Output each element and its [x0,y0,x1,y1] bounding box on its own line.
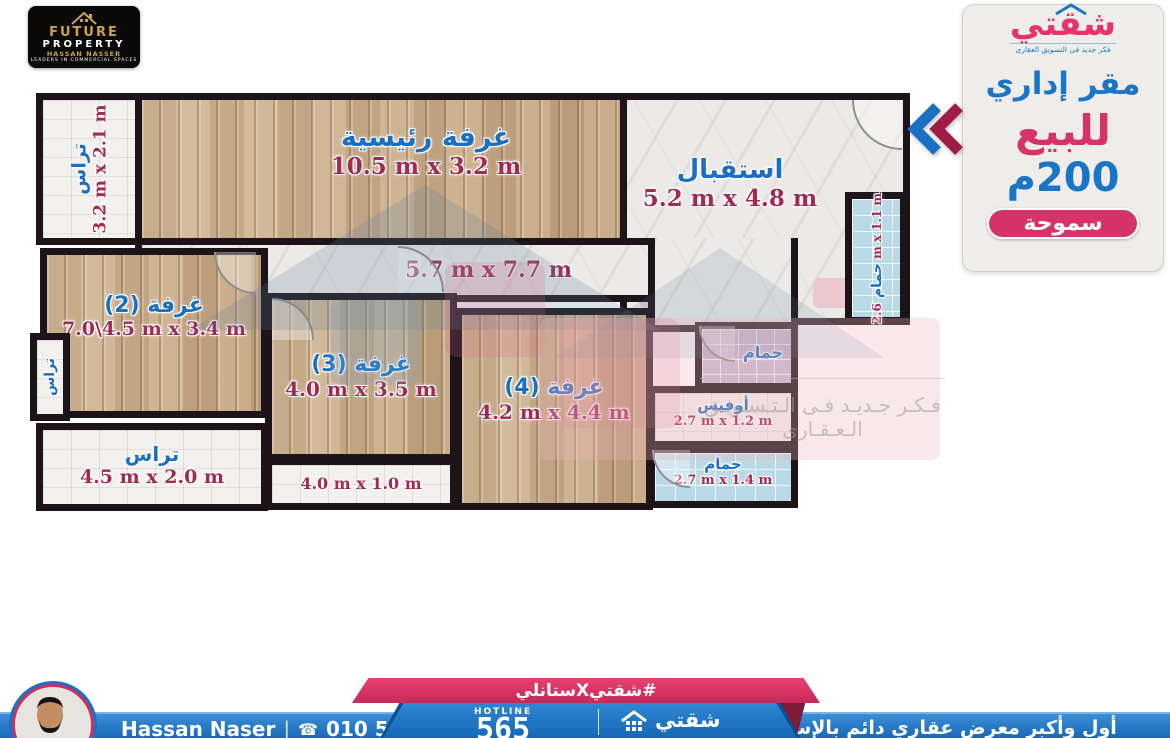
future-property-logo: FUTURE PROPERTY HASSAN NASSER LEADERS IN… [28,6,140,68]
room-label: تراس [68,143,90,195]
phone-icon: ☎ [298,720,318,738]
shaqati-logo-tagline: فكر جديد فى التسويق العقارى [1010,43,1116,54]
room-dims: 4.0 m x 3.5 m [272,377,450,401]
agent-name: Hassan Naser [121,717,275,738]
room-label: غرفة (2) [47,293,261,318]
brand-line1: FUTURE [49,26,119,39]
room-terrace-bottom: تراس 4.5 m x 2.0 m [36,423,268,511]
footer-logo-text: شقتي [655,710,721,731]
room-label: غرفة (4) [462,375,646,400]
room-terrace-left: تراس [30,333,70,421]
brand-tagline: LEADERS IN COMMERCIAL SPACES [31,59,138,64]
room-label: غرفة (3) [272,352,450,377]
room-dims: 2.7 m x 1.2 m [655,414,791,429]
brand-agent: HASSAN NASSER [47,51,121,58]
room-dims: 3.2 m x 2.1 m [90,105,110,234]
room-dims: 10.5 m x 3.2 m [232,153,620,180]
flyer-canvas: FUTURE PROPERTY HASSAN NASSER LEADERS IN… [0,0,1170,738]
hotline-number: 565 [441,717,565,738]
hashtag: #شقتيXستانلي [516,681,657,701]
room-reception-lower [648,238,798,332]
property-type: مقر إداري [986,66,1141,102]
room-label: أوفيس [655,396,791,414]
divider: | [283,717,290,738]
room-label: حمام [743,343,783,362]
agent-portrait [15,687,85,738]
room-label: غرفة رئيسية [232,122,620,153]
room-dims: 2.6 m x 1.1 m [871,192,885,323]
room-master: غرفة رئيسية 10.5 m x 3.2 m [135,93,627,245]
room-dims: 4.0 m x 1.0 m [300,474,421,493]
room-label: استقبال [627,155,833,185]
entrance-arrow-icon [903,101,965,157]
room-terrace-top: تراس 3.2 m x 2.1 m [36,93,142,245]
room-office: أوفيس 2.7 m x 1.2 m [648,386,798,448]
house-icon [69,10,99,25]
location-badge: سموحة [987,208,1138,239]
house-icon [619,709,649,731]
room-dims: 4.2 m x 4.4 m [462,400,646,424]
room-bath-right: حمام 2.6 m x 1.1 m [845,192,907,324]
roof-icon [1054,3,1088,15]
listing-panel: شقتي فكر جديد فى التسويق العقارى مقر إدا… [962,4,1164,272]
room-label: تراس [43,442,261,466]
room-dims: 5.2 m x 4.8 m [627,185,833,212]
shaqati-logo: شقتي فكر جديد فى التسويق العقارى [1010,5,1116,54]
room-dims: 7.0\4.5 m x 3.4 m [47,318,261,340]
agent-avatar [12,684,94,738]
room-4: غرفة (4) 4.2 m x 4.4 m [455,308,653,510]
divider [598,709,599,735]
area-value: 200م [1007,156,1120,200]
brand-line2: PROPERTY [42,40,125,50]
offer-label: للبيع [1015,108,1111,154]
room-label: تراس [42,358,58,396]
hotline-banner: HOTLINE 565 شقتي [380,700,800,738]
hashtag-ribbon: #شقتيXستانلي [352,678,820,703]
room-label: حمام [870,263,886,298]
room-dims: 4.5 m x 2.0 m [43,466,261,488]
room-balcony-strip: 4.0 m x 1.0 m [265,458,457,510]
